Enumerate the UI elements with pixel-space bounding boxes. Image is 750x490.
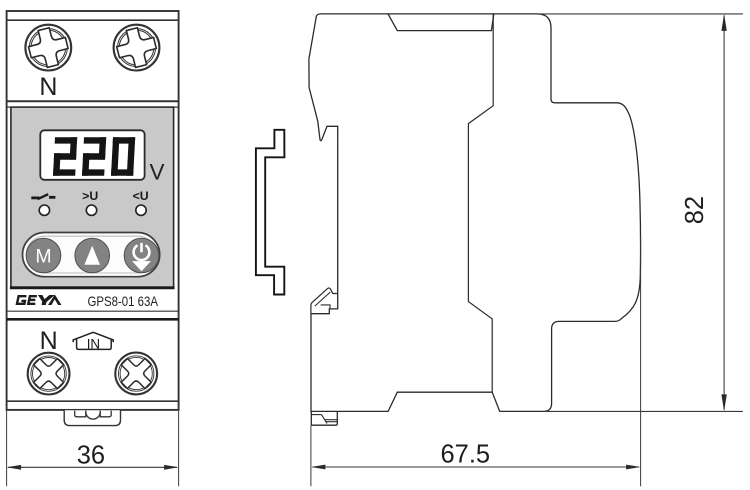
svg-text:V: V — [149, 159, 164, 184]
svg-text:36: 36 — [77, 442, 105, 470]
svg-text:>U: >U — [82, 189, 98, 203]
svg-text:IN: IN — [87, 336, 100, 351]
svg-text:67.5: 67.5 — [440, 441, 490, 469]
svg-text:N: N — [39, 73, 57, 101]
svg-text:N: N — [40, 327, 58, 355]
svg-text:<U: <U — [133, 189, 149, 203]
svg-text:GPS8-01 63A: GPS8-01 63A — [87, 294, 158, 309]
svg-text:82: 82 — [681, 196, 709, 224]
svg-text:M: M — [35, 245, 51, 267]
